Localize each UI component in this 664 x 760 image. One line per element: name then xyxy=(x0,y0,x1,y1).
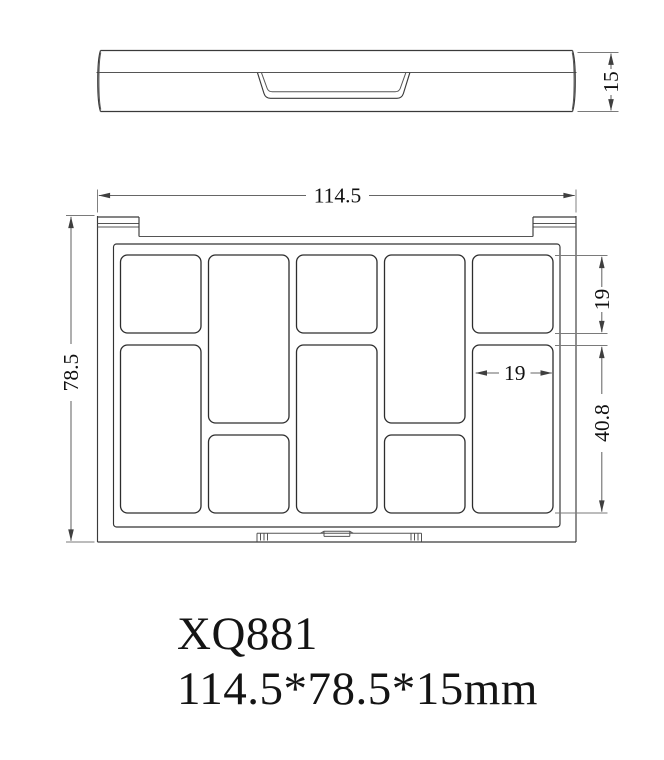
inner-recess-wall xyxy=(114,244,561,527)
pan-width-dimension-label: 19 xyxy=(504,361,526,385)
technical-drawing-svg: 15 xyxy=(0,0,664,760)
pan-well xyxy=(385,255,466,423)
pan-well xyxy=(209,255,290,423)
side-right-cap-inner xyxy=(572,53,574,110)
pan-well xyxy=(209,435,290,513)
top-view-drawing: 114.5 78.5 19 40.8 xyxy=(59,184,614,543)
hinge-tab-left xyxy=(98,217,140,237)
pan-height-dimension: 19 xyxy=(555,256,614,334)
bottom-latch xyxy=(257,531,422,541)
cad-drawing-page: { "drawing": { "side_view": { "height_di… xyxy=(0,0,664,760)
side-height-dimension-label: 15 xyxy=(599,71,623,93)
side-view-drawing: 15 xyxy=(97,51,624,112)
model-number: XQ881 xyxy=(177,611,318,658)
latch-center-tab xyxy=(321,531,354,536)
pan-height-dimension-label: 19 xyxy=(590,289,614,311)
pan-well xyxy=(121,255,202,333)
product-dimensions: 114.5*78.5*15mm xyxy=(177,666,538,713)
thumb-notch-inner xyxy=(262,73,406,92)
overall-height-dimension: 78.5 xyxy=(59,216,95,543)
large-pan-height-dimension: 40.8 xyxy=(555,346,614,514)
overall-width-dimension: 114.5 xyxy=(98,184,577,213)
pan-well xyxy=(297,345,378,513)
overall-height-dimension-label: 78.5 xyxy=(59,354,83,392)
large-pan-height-dimension-label: 40.8 xyxy=(590,404,614,442)
pan-well xyxy=(473,255,554,333)
thumb-notch-outer xyxy=(258,73,410,99)
pan-well xyxy=(297,255,378,333)
pan-well xyxy=(121,345,202,513)
side-left-cap-inner xyxy=(99,53,101,110)
pan-width-dimension: 19 xyxy=(476,361,552,385)
pan-well xyxy=(385,435,466,513)
pan-grid xyxy=(121,255,554,513)
hinge-tab-right xyxy=(533,217,576,237)
drawing-canvas: 15 xyxy=(0,0,664,760)
overall-width-dimension-label: 114.5 xyxy=(314,184,362,208)
side-height-dimension: 15 xyxy=(578,53,624,112)
